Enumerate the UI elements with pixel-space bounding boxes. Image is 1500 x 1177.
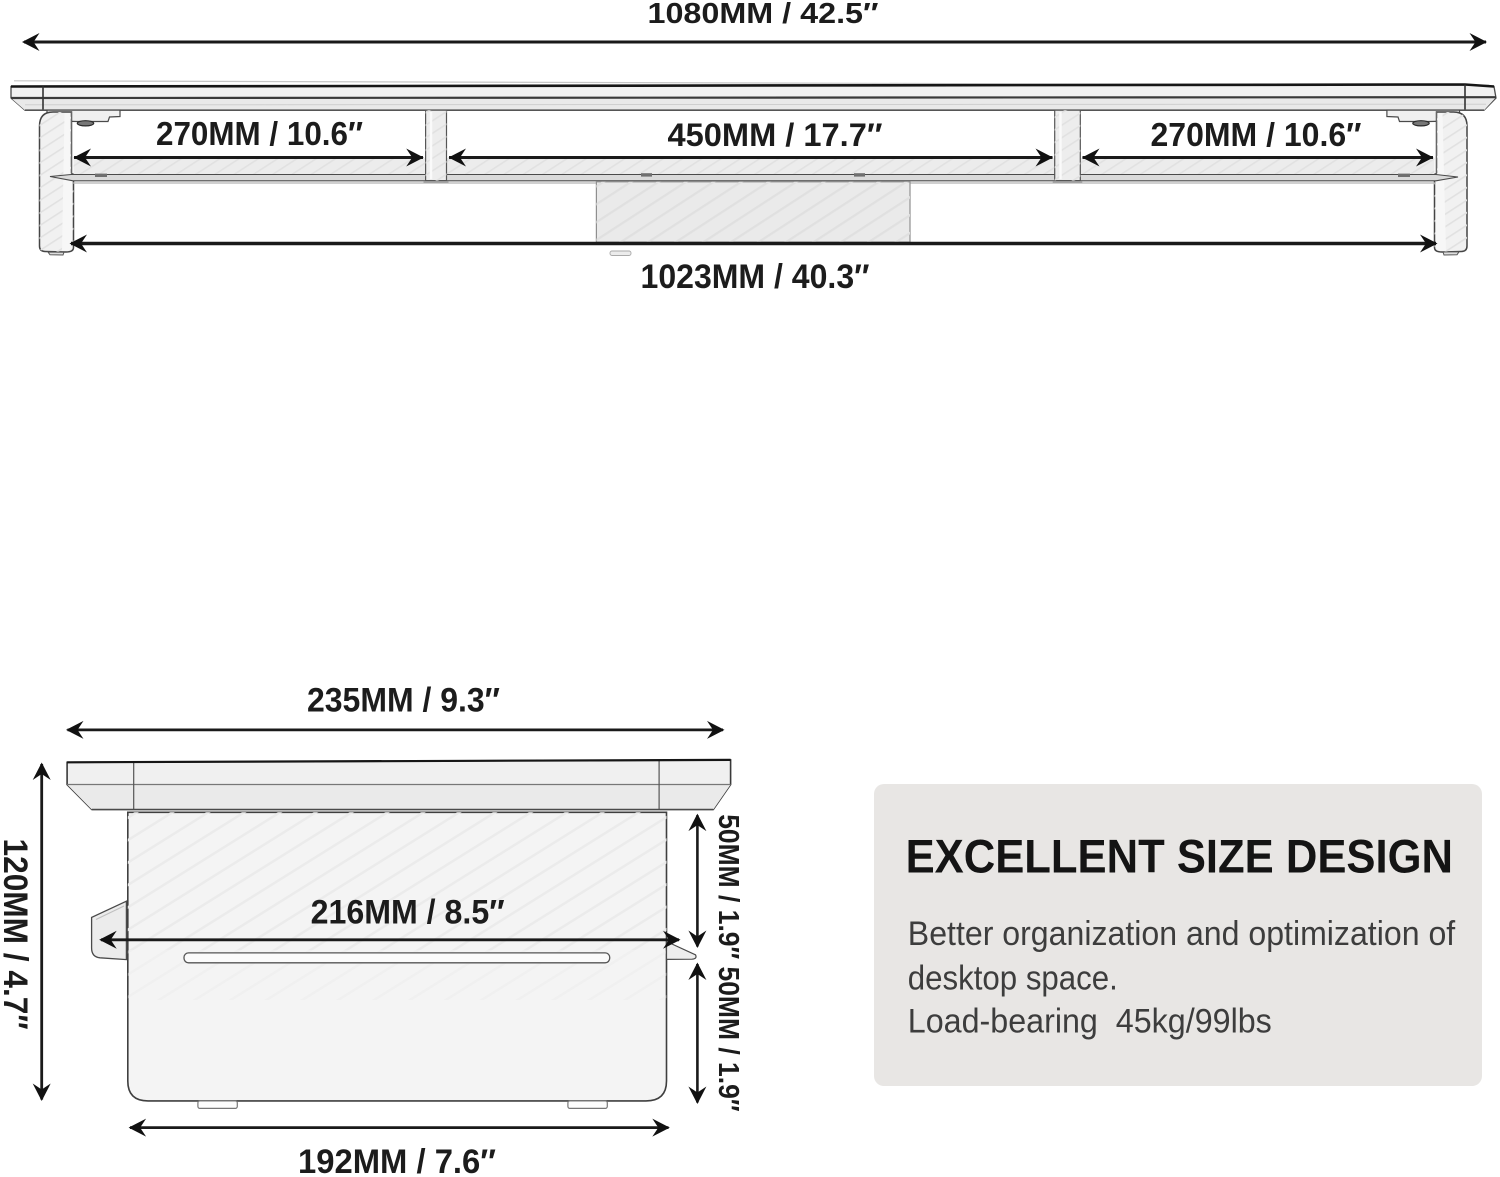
- svg-text:Better organization and optimi: Better organization and optimization of: [908, 915, 1456, 953]
- svg-text:1080MM / 42.5″: 1080MM / 42.5″: [648, 0, 879, 30]
- svg-text:450MM / 17.7″: 450MM / 17.7″: [668, 117, 883, 153]
- svg-text:270MM / 10.6″: 270MM / 10.6″: [156, 115, 363, 152]
- svg-text:desktop space.: desktop space.: [908, 960, 1118, 998]
- svg-text:192MM / 7.6″: 192MM / 7.6″: [298, 1143, 496, 1177]
- svg-text:50MM / 1.9″: 50MM / 1.9″: [712, 814, 744, 959]
- svg-text:270MM / 10.6″: 270MM / 10.6″: [1151, 116, 1362, 153]
- svg-text:EXCELLENT SIZE DESIGN: EXCELLENT SIZE DESIGN: [906, 829, 1453, 882]
- svg-text:235MM / 9.3″: 235MM / 9.3″: [307, 681, 500, 719]
- svg-text:216MM / 8.5″: 216MM / 8.5″: [311, 894, 505, 932]
- svg-text:120MM / 4.7″: 120MM / 4.7″: [0, 839, 34, 1030]
- svg-text:50MM / 1.9″: 50MM / 1.9″: [712, 967, 744, 1112]
- svg-text:Load-bearing 45kg/99lbs: Load-bearing 45kg/99lbs: [908, 1002, 1272, 1040]
- svg-text:1023MM / 40.3″: 1023MM / 40.3″: [641, 258, 870, 296]
